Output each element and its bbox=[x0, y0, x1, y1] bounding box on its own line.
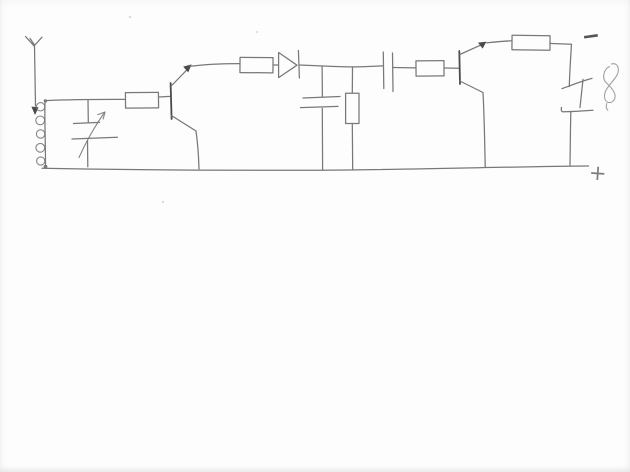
resistor-body bbox=[346, 93, 359, 123]
earphone-top-plate bbox=[562, 78, 592, 88]
antenna-icon bbox=[26, 37, 43, 47]
diode-triangle bbox=[279, 53, 297, 78]
coil-turn-icon bbox=[36, 130, 44, 138]
varcap-bottom-plate bbox=[72, 137, 118, 139]
resistor-body bbox=[512, 35, 550, 50]
transistor-q1 bbox=[171, 64, 240, 169]
q2-collector-lead bbox=[460, 44, 484, 55]
schematic-canvas: − + bbox=[0, 0, 630, 472]
variable-capacitor bbox=[72, 100, 118, 167]
paper-speck bbox=[129, 16, 132, 19]
q1-emitter-lead bbox=[171, 115, 199, 168]
q2-base-bar bbox=[459, 51, 460, 84]
resistor-r4 bbox=[416, 61, 444, 76]
tank-to-r1-wire bbox=[46, 99, 126, 100]
earphone-center-bar bbox=[580, 79, 583, 107]
r1-to-q1-wire bbox=[159, 96, 170, 97]
positive-terminal-label: + bbox=[588, 160, 607, 185]
r5-to-earphone-wire bbox=[550, 43, 571, 86]
c2-right-plate bbox=[393, 53, 394, 92]
bottom-rail-wire bbox=[42, 166, 589, 170]
capacitor-c1 bbox=[301, 66, 341, 170]
transistor-q2 bbox=[459, 41, 511, 167]
varcap-arrow-shaft bbox=[79, 113, 105, 158]
c1-bottom-plate bbox=[301, 106, 339, 107]
paper-speck bbox=[162, 201, 164, 203]
c1-top-plate bbox=[303, 97, 340, 99]
q1-arrowhead-icon bbox=[183, 64, 191, 72]
resistor-body bbox=[240, 57, 273, 72]
antenna-arrowhead-icon bbox=[31, 107, 38, 115]
scanned-paper-sheet: − + bbox=[0, 0, 630, 472]
resistor-r3 bbox=[346, 67, 359, 170]
negative-terminal-label: − bbox=[580, 23, 602, 50]
coil-turn-icon bbox=[36, 116, 45, 125]
q1-collector-wire bbox=[190, 64, 240, 67]
resistor-body bbox=[416, 61, 444, 76]
coil-turn-icon bbox=[36, 103, 44, 111]
paper-speck bbox=[256, 31, 258, 33]
coil-turn-icon bbox=[37, 157, 45, 165]
varcap-top-plate bbox=[74, 122, 100, 123]
earphone-bottom-lead bbox=[570, 112, 571, 165]
q2-emitter-lead bbox=[460, 81, 485, 167]
resistor-r1 bbox=[125, 92, 158, 108]
c2-left-plate bbox=[383, 52, 384, 89]
q1-base-bar bbox=[171, 83, 172, 119]
diode-output-wire bbox=[299, 65, 322, 66]
capacitor-c2 bbox=[383, 52, 416, 92]
coil-turn-icon bbox=[36, 143, 45, 152]
diode-d1 bbox=[279, 51, 322, 79]
q2-collector-wire bbox=[487, 41, 512, 43]
resistor-body bbox=[125, 92, 158, 108]
resistor-r5 bbox=[512, 35, 550, 50]
resistor-r2 bbox=[240, 57, 273, 72]
earphone-cord-icon bbox=[604, 64, 619, 111]
tuning-coil bbox=[36, 99, 48, 168]
antenna-lead-wire bbox=[35, 46, 36, 106]
diode-cathode-bar bbox=[298, 51, 299, 79]
earphone-bottom-plate bbox=[561, 107, 593, 111]
